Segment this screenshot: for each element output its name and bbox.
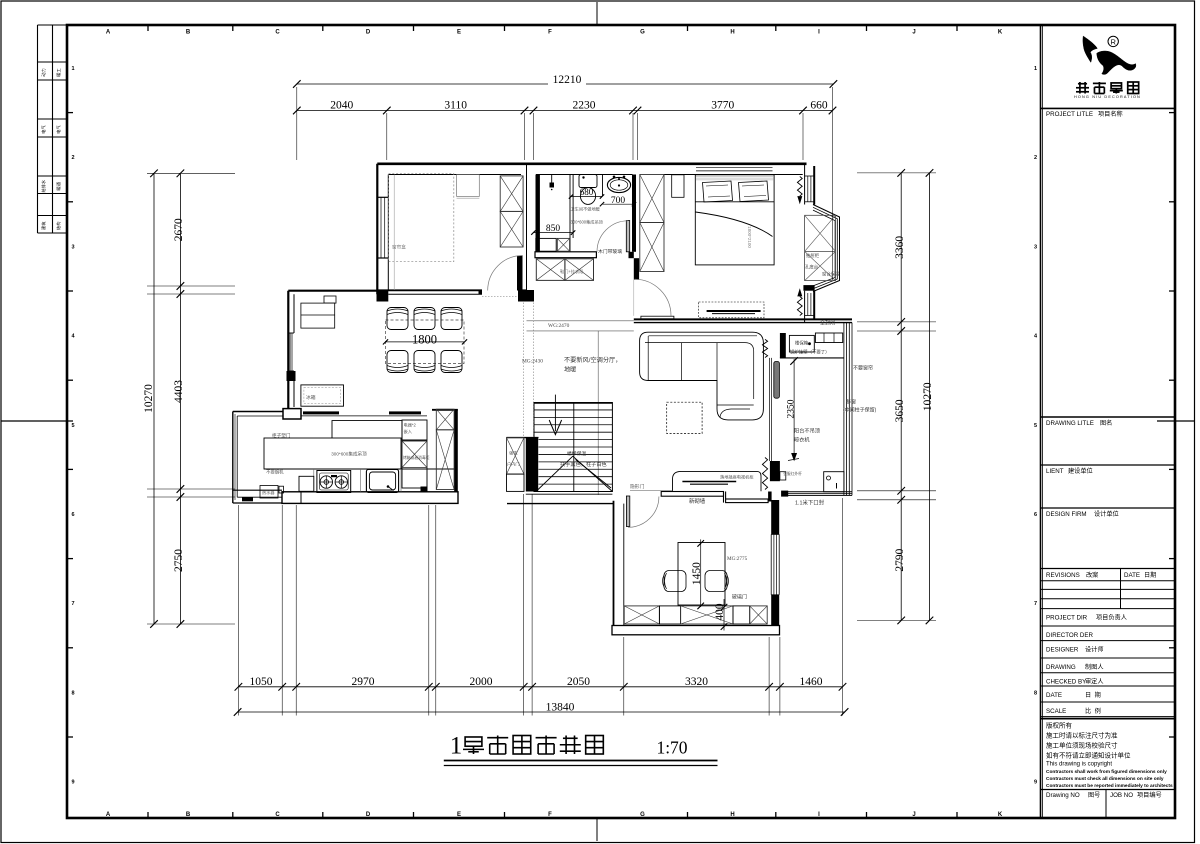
svg-text:CHECKED BY: CHECKED BY — [1046, 679, 1086, 686]
svg-text:4403: 4403 — [173, 380, 185, 403]
svg-text:不要新风/空调分厅，: 不要新风/空调分厅， — [564, 356, 621, 364]
svg-text:F: F — [548, 30, 552, 36]
svg-text:玻璃门: 玻璃门 — [732, 594, 747, 601]
svg-text:850: 850 — [546, 224, 561, 234]
svg-text:2230: 2230 — [573, 100, 596, 112]
svg-text:比 例: 比 例 — [1085, 707, 1101, 715]
svg-text:孔度台: 孔度台 — [805, 264, 819, 271]
svg-text:E: E — [457, 30, 461, 36]
svg-text:DATE: DATE — [1124, 572, 1140, 579]
svg-text:1:70: 1:70 — [656, 738, 687, 758]
svg-text:2670: 2670 — [173, 218, 185, 241]
svg-text:冰箱: 冰箱 — [306, 394, 316, 401]
svg-text:审定人: 审定人 — [1085, 678, 1104, 686]
svg-text:3360: 3360 — [894, 236, 906, 259]
svg-text:窗台保温: 窗台保温 — [822, 271, 840, 278]
svg-text:12210: 12210 — [553, 74, 582, 86]
svg-text:衣服红外杆: 衣服红外杆 — [783, 471, 802, 476]
svg-text:700: 700 — [611, 196, 626, 206]
svg-text:660: 660 — [810, 100, 828, 112]
svg-text:9: 9 — [1034, 780, 1037, 786]
svg-text:2350: 2350 — [787, 399, 797, 418]
svg-text:This drawing is copyright: This drawing is copyright — [1046, 762, 1112, 768]
svg-text:5: 5 — [72, 423, 75, 429]
svg-text:K: K — [998, 30, 1003, 36]
svg-text:嵌入: 嵌入 — [404, 429, 413, 435]
svg-text:2970: 2970 — [352, 676, 375, 688]
svg-text:1800: 1800 — [412, 333, 437, 347]
svg-text:3: 3 — [1034, 244, 1037, 250]
svg-text:结构: 结构 — [55, 222, 62, 230]
svg-text:C: C — [275, 812, 280, 818]
svg-text:电器*2: 电器*2 — [404, 422, 417, 429]
svg-text:不要窗帘: 不要窗帘 — [853, 365, 873, 372]
svg-text:PROJECT DIR: PROJECT DIR — [1046, 615, 1088, 622]
svg-text:3110: 3110 — [444, 100, 467, 112]
svg-text:地暖: 地暖 — [564, 366, 576, 374]
svg-text:1: 1 — [72, 66, 75, 72]
svg-text:DIRECTOR DER: DIRECTOR DER — [1046, 632, 1094, 639]
svg-text:300*600集成吊顶: 300*600集成吊顶 — [571, 219, 604, 226]
svg-text:锅炉挂壁（不要了）: 锅炉挂壁（不要了） — [790, 349, 830, 356]
svg-text:2040: 2040 — [330, 100, 353, 112]
svg-text:4: 4 — [1034, 334, 1038, 340]
svg-text:施工单位须现场校验尺寸: 施工单位须现场校验尺寸 — [1046, 741, 1118, 750]
svg-text:项目编号: 项目编号 — [1137, 791, 1162, 799]
svg-text:WG:2470: WG:2470 — [548, 323, 570, 329]
svg-text:木门带玻璃: 木门带玻璃 — [598, 248, 622, 255]
svg-text:给排水: 给排水 — [40, 179, 47, 192]
svg-text:图号: 图号 — [1088, 792, 1100, 799]
svg-text:柜子塑门: 柜子塑门 — [272, 432, 291, 439]
svg-text:680: 680 — [580, 187, 594, 197]
svg-text:D: D — [366, 812, 371, 818]
svg-text:图名: 图名 — [1100, 419, 1112, 427]
svg-text:DESIGNER: DESIGNER — [1046, 647, 1079, 654]
svg-text:1450: 1450 — [691, 562, 703, 585]
svg-text:8: 8 — [1034, 690, 1037, 696]
svg-text:2000: 2000 — [470, 676, 493, 688]
svg-text:强电: 强电 — [509, 450, 518, 457]
svg-text:2750: 2750 — [173, 549, 185, 572]
svg-text:施工时请以标注尺寸为准: 施工时请以标注尺寸为准 — [1046, 731, 1118, 740]
svg-text:暖工: 暖工 — [55, 68, 62, 76]
svg-text:DESIGN FIRM: DESIGN FIRM — [1046, 511, 1087, 518]
svg-text:2: 2 — [72, 155, 75, 161]
svg-text:3650: 3650 — [894, 399, 906, 422]
svg-text:K: K — [998, 812, 1003, 818]
svg-text:扶手黑色，柱子白色: 扶手黑色，柱子白色 — [560, 460, 607, 468]
svg-text:设计单位: 设计单位 — [1094, 510, 1119, 518]
svg-text:卫生间不做地暖: 卫生间不做地暖 — [571, 206, 601, 213]
svg-text:6: 6 — [72, 512, 75, 518]
svg-text:Contractors shall work from fi: Contractors shall work from figured dime… — [1046, 769, 1167, 775]
svg-text:G: G — [640, 812, 645, 818]
svg-text:300*600集成吊顶: 300*600集成吊顶 — [331, 451, 367, 458]
svg-text:5: 5 — [1034, 423, 1037, 429]
svg-text:暖通: 暖通 — [55, 181, 62, 190]
svg-text:动力: 动力 — [40, 68, 47, 76]
svg-text:隐形门: 隐形门 — [630, 483, 645, 490]
svg-text:抽屉柜: 抽屉柜 — [806, 252, 820, 259]
svg-text:A: A — [106, 30, 111, 36]
svg-text:热水器: 热水器 — [262, 489, 275, 496]
svg-text:DATE: DATE — [1046, 692, 1062, 699]
svg-text:REVISIONS: REVISIONS — [1046, 572, 1080, 579]
svg-text:JOB NO: JOB NO — [1110, 792, 1133, 799]
svg-text:F: F — [548, 812, 552, 818]
svg-text:7: 7 — [72, 601, 75, 607]
svg-text:J: J — [912, 30, 915, 36]
svg-text:落地插座电视机柜: 落地插座电视机柜 — [720, 474, 754, 481]
svg-text:G: G — [640, 30, 645, 36]
svg-text:日 期: 日 期 — [1085, 691, 1101, 699]
svg-text:项目名称: 项目名称 — [1098, 110, 1123, 118]
svg-text:户内门: 户内门 — [507, 461, 520, 468]
svg-text:3770: 3770 — [711, 100, 734, 112]
svg-text:13840: 13840 — [546, 702, 575, 714]
svg-text:不要烟机: 不要烟机 — [266, 469, 284, 476]
svg-text:窗帘盒: 窗帘盒 — [392, 244, 406, 251]
svg-text:制图人: 制图人 — [1085, 663, 1104, 671]
svg-text:全封闭: 全封闭 — [820, 320, 835, 327]
svg-text:I: I — [818, 30, 820, 36]
svg-text:MG:2430: MG:2430 — [522, 359, 543, 365]
svg-text:烤箱或者消毒柜: 烤箱或者消毒柜 — [403, 455, 430, 460]
svg-text:10270: 10270 — [143, 384, 155, 413]
svg-text:DRAWING: DRAWING — [1046, 664, 1076, 671]
svg-text:阳台不吊顶: 阳台不吊顶 — [794, 427, 820, 435]
svg-text:B: B — [186, 30, 191, 36]
svg-text:DRAWING LITLE: DRAWING LITLE — [1046, 420, 1094, 427]
svg-text:1.1米下口封: 1.1米下口封 — [795, 499, 825, 507]
svg-text:D: D — [366, 30, 371, 36]
svg-text:项目负责人: 项目负责人 — [1096, 614, 1127, 622]
svg-text:Contractors must be reported i: Contractors must be reported immediately… — [1046, 783, 1173, 789]
svg-text:2050: 2050 — [567, 676, 590, 688]
svg-text:H: H — [730, 30, 734, 36]
svg-text:(中间柱子保留): (中间柱子保留) — [843, 407, 877, 414]
svg-text:SCALE: SCALE — [1046, 708, 1066, 715]
svg-text:如有不符请立即通知设计单位: 如有不符请立即通知设计单位 — [1046, 751, 1131, 760]
svg-text:10270: 10270 — [922, 382, 934, 411]
svg-text:8: 8 — [72, 690, 75, 696]
svg-text:2: 2 — [1034, 155, 1037, 161]
svg-text:2790: 2790 — [894, 548, 906, 571]
svg-text:C: C — [275, 30, 280, 36]
svg-text:4: 4 — [72, 334, 76, 340]
svg-text:日期: 日期 — [1144, 571, 1156, 579]
svg-text:1460: 1460 — [800, 676, 823, 688]
svg-text:Contractors must check all dim: Contractors must check all dimensions on… — [1046, 776, 1164, 782]
svg-text:LIENT: LIENT — [1046, 468, 1064, 475]
svg-text:3: 3 — [72, 244, 75, 250]
svg-text:1800*2100: 1800*2100 — [747, 226, 752, 248]
svg-text:E: E — [457, 812, 461, 818]
svg-text:6: 6 — [1034, 512, 1037, 518]
svg-text:建筑: 建筑 — [40, 221, 47, 230]
svg-text:移窗: 移窗 — [846, 399, 856, 406]
svg-text:楼保箱: 楼保箱 — [795, 340, 809, 347]
svg-text:J: J — [912, 812, 915, 818]
svg-text:晾衣机: 晾衣机 — [794, 436, 810, 444]
svg-text:HONG NIU DECORATION: HONG NIU DECORATION — [1074, 95, 1141, 99]
svg-text:7: 7 — [1034, 601, 1037, 607]
svg-text:设计师: 设计师 — [1085, 646, 1104, 654]
svg-text:电气: 电气 — [55, 125, 61, 134]
svg-text:400: 400 — [714, 603, 726, 621]
svg-text:3320: 3320 — [685, 676, 708, 688]
svg-text:A: A — [106, 812, 111, 818]
svg-text:1050: 1050 — [250, 676, 273, 688]
svg-text:改案: 改案 — [1086, 571, 1099, 579]
svg-text:新砌墙: 新砌墙 — [689, 497, 706, 505]
svg-text:建设单位: 建设单位 — [1068, 467, 1093, 475]
svg-text:R: R — [1110, 38, 1116, 47]
svg-text:H: H — [730, 812, 734, 818]
svg-text:B: B — [186, 812, 191, 818]
svg-text:MG:2775: MG:2775 — [727, 556, 748, 562]
svg-text:PROJECT LITLE: PROJECT LITLE — [1046, 111, 1093, 118]
svg-text:Drawing NO: Drawing NO — [1046, 792, 1080, 799]
svg-text:鞋门+挂衣段: 鞋门+挂衣段 — [560, 268, 584, 275]
svg-text:9: 9 — [72, 780, 75, 786]
svg-text:电气: 电气 — [40, 125, 46, 134]
svg-text:版权所有: 版权所有 — [1046, 721, 1073, 730]
svg-text:1: 1 — [450, 733, 463, 760]
svg-text:楼梯保温: 楼梯保温 — [567, 450, 586, 457]
svg-text:1: 1 — [1034, 66, 1037, 72]
